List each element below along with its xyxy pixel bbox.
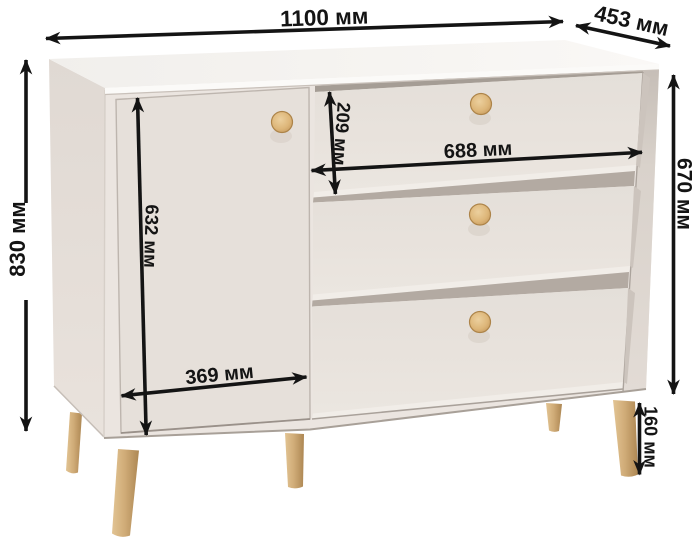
svg-text:830 мм: 830 мм: [5, 201, 30, 276]
svg-text:632 мм: 632 мм: [140, 204, 163, 268]
svg-text:670 мм: 670 мм: [673, 158, 696, 230]
svg-text:688 мм: 688 мм: [443, 138, 513, 164]
svg-text:160 мм: 160 мм: [641, 406, 661, 468]
svg-text:1100 мм: 1100 мм: [280, 3, 369, 31]
svg-text:209 мм: 209 мм: [329, 102, 354, 167]
